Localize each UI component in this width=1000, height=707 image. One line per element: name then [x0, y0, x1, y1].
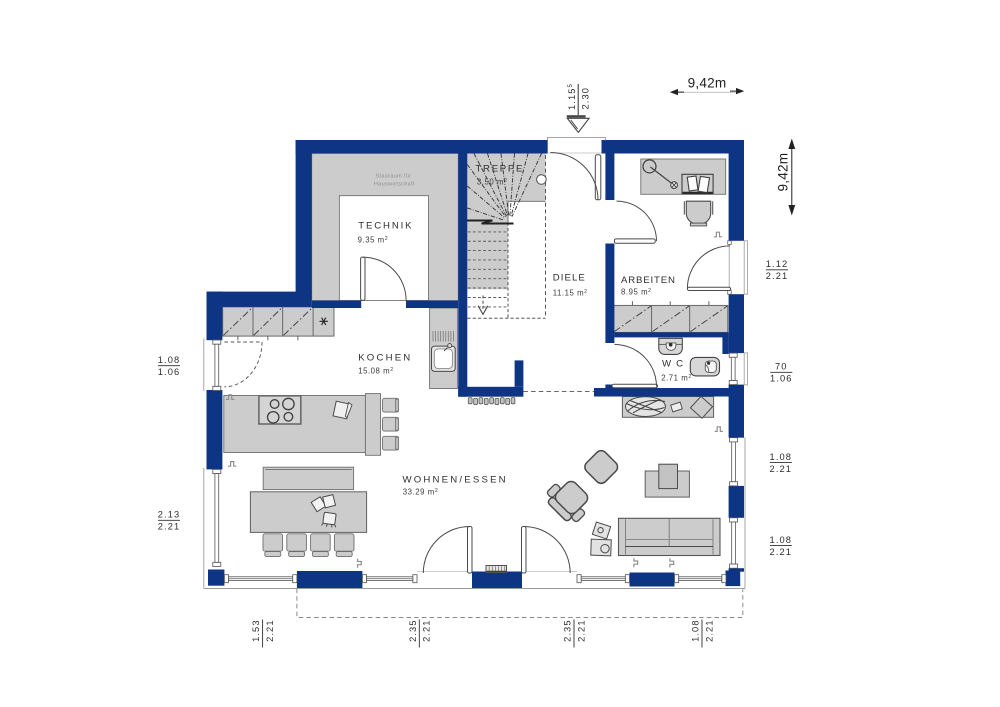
svg-text:Stauraum für: Stauraum für — [376, 174, 412, 180]
svg-text:3.50 m2: 3.50 m2 — [477, 178, 508, 187]
svg-text:1.08: 1.08 — [691, 619, 701, 642]
svg-text:KOCHEN: KOCHEN — [358, 353, 412, 364]
svg-text:2.21: 2.21 — [770, 464, 793, 474]
svg-text:ARBEITEN: ARBEITEN — [621, 275, 676, 286]
svg-text:Hauswirtschaft: Hauswirtschaft — [374, 182, 415, 188]
svg-text:2.21: 2.21 — [265, 619, 275, 642]
svg-text:2.21: 2.21 — [766, 271, 789, 281]
svg-text:2.21: 2.21 — [770, 547, 793, 557]
svg-text:2.35: 2.35 — [563, 619, 573, 642]
svg-text:TECHNIK: TECHNIK — [358, 221, 413, 232]
svg-text:33.29 m2: 33.29 m2 — [403, 488, 438, 497]
svg-text:70: 70 — [775, 362, 788, 372]
svg-text:11.15 m2: 11.15 m2 — [553, 289, 588, 298]
svg-text:TREPPE: TREPPE — [476, 164, 525, 175]
svg-text:2.21: 2.21 — [422, 619, 432, 642]
svg-text:1.12: 1.12 — [766, 259, 789, 269]
svg-text:2.71 m2: 2.71 m2 — [661, 374, 692, 383]
svg-text:W C: W C — [662, 359, 684, 370]
svg-text:9,42m: 9,42m — [776, 153, 791, 192]
svg-text:2.21: 2.21 — [576, 619, 586, 642]
svg-text:9,42m: 9,42m — [688, 75, 727, 90]
svg-text:2.21: 2.21 — [704, 619, 714, 642]
svg-text:1.08: 1.08 — [158, 355, 181, 365]
svg-text:WOHNEN/ESSEN: WOHNEN/ESSEN — [403, 475, 508, 486]
svg-text:1.06: 1.06 — [158, 367, 181, 377]
svg-text:9.35 m2: 9.35 m2 — [358, 236, 389, 245]
svg-text:2.13: 2.13 — [158, 510, 181, 520]
svg-text:2.35: 2.35 — [408, 619, 418, 642]
svg-text:DIELE: DIELE — [553, 273, 586, 284]
svg-text:2.30: 2.30 — [580, 87, 590, 110]
svg-text:8.95 m2: 8.95 m2 — [621, 287, 652, 296]
svg-text:2.21: 2.21 — [158, 522, 181, 532]
svg-text:15.08 m2: 15.08 m2 — [358, 367, 393, 376]
svg-text:1.08: 1.08 — [770, 452, 793, 462]
svg-text:1.53: 1.53 — [251, 619, 261, 642]
svg-text:1.06: 1.06 — [770, 374, 793, 384]
svg-text:1.08: 1.08 — [770, 535, 793, 545]
